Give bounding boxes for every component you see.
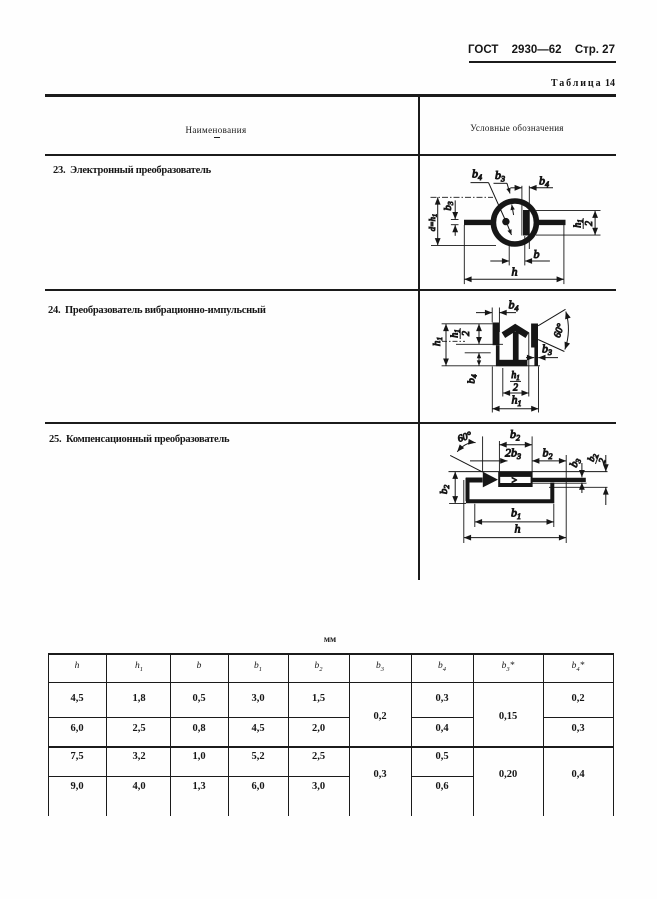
svg-text:b3: b3: [442, 201, 455, 211]
svg-text:2: 2: [584, 221, 595, 226]
svg-text:b4: b4: [509, 298, 519, 314]
svg-text:b: b: [534, 247, 540, 261]
svg-text:2: 2: [598, 457, 609, 465]
svg-text:b2: b2: [438, 485, 451, 495]
svg-text:h1: h1: [511, 370, 520, 382]
svg-text:b1: b1: [511, 506, 521, 522]
svg-text:b4: b4: [472, 167, 482, 183]
svg-text:b3: b3: [568, 456, 583, 469]
svg-text:b3: b3: [495, 168, 505, 184]
svg-text:>: >: [512, 476, 518, 487]
svg-text:b3: b3: [542, 342, 552, 358]
svg-text:60°: 60°: [552, 322, 567, 339]
svg-text:h1: h1: [431, 337, 444, 346]
svg-text:h: h: [512, 265, 518, 279]
svg-text:h: h: [515, 522, 521, 536]
svg-text:2: 2: [461, 331, 472, 336]
svg-text:b4: b4: [466, 374, 479, 384]
svg-text:d=h1: d=h1: [427, 214, 439, 232]
svg-text:b2: b2: [543, 446, 553, 462]
svg-text:b4: b4: [539, 174, 549, 190]
svg-text:2b3: 2b3: [505, 446, 521, 462]
svg-text:b2: b2: [510, 427, 520, 443]
svg-text:h1: h1: [512, 393, 522, 409]
